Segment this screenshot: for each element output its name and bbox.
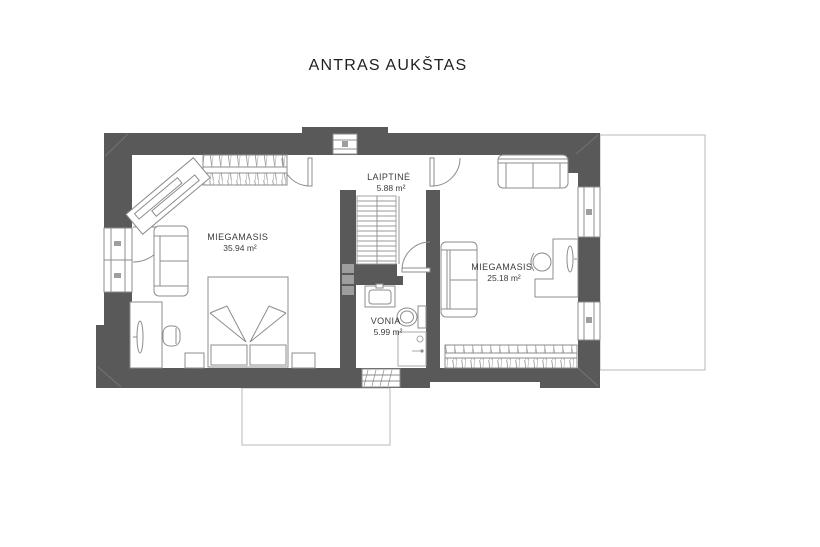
left-balcony-window (104, 228, 132, 292)
wardrobe-right (445, 345, 577, 368)
right-window-upper (578, 187, 600, 237)
door-bathroom (402, 242, 430, 272)
desk-left-bedroom (130, 302, 162, 368)
room-label-staircase: LAIPTINĖ 5.88 m² (367, 167, 415, 193)
chimney-flues (342, 264, 354, 295)
dresser-diagonal (126, 158, 210, 234)
room-label-bathroom: VONIA 5.99 m² (371, 311, 405, 337)
armchair-right-bedroom (441, 242, 477, 317)
right-terrace-outline (600, 135, 705, 370)
right-window-lower (578, 302, 600, 340)
bottom-window (362, 369, 400, 387)
page-title: ANTRAS AUKŠTAS (0, 57, 776, 75)
shower (398, 332, 426, 366)
stool-left-bedroom (163, 326, 180, 346)
room-label-bedroom-left: MIEGAMASIS 35.94 m² (207, 227, 272, 253)
bed (208, 277, 288, 367)
floor-plan-drawing: MIEGAMASIS 35.94 m² LAIPTINĖ 5.88 m² VON… (0, 0, 820, 547)
bottom-patio-outline (242, 388, 390, 445)
sink (365, 284, 395, 307)
staircase (357, 196, 399, 264)
wardrobe-left (203, 155, 287, 185)
stair-top-window (333, 134, 357, 154)
sofa-right-bedroom (498, 155, 568, 188)
left-bedroom-furniture (126, 155, 315, 368)
door-right-bedroom (430, 158, 460, 186)
floor-plan-page: ANTRAS AUKŠTAS (0, 0, 820, 547)
room-label-bedroom-right: MIEGAMASIS 25.18 m² (471, 257, 536, 283)
sofa-left-bedroom (154, 226, 188, 296)
